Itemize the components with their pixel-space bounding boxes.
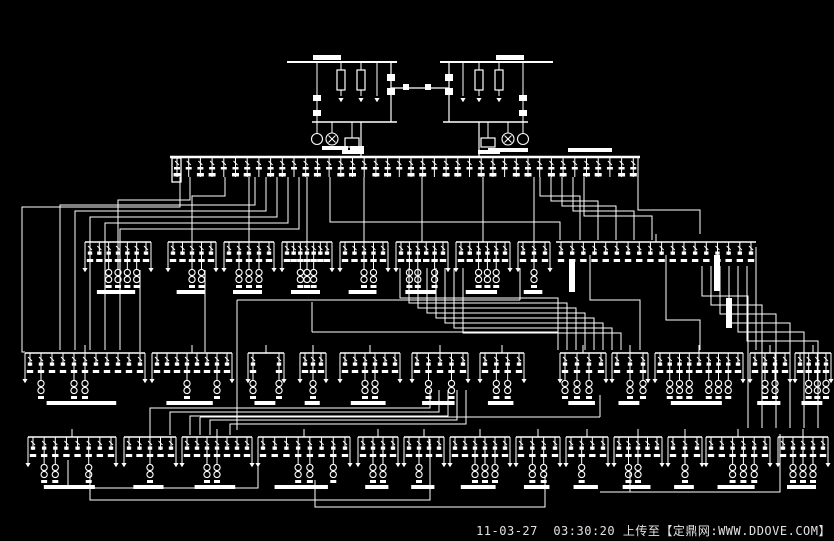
watermark-text: 11-03-27 03:30:20 上传至【定鼎网:WWW.DDOVE.COM】	[476, 524, 831, 538]
ct-dash	[245, 447, 249, 450]
feeder-label	[209, 173, 216, 177]
feeder-label	[314, 173, 321, 177]
meter-circle	[297, 269, 303, 275]
circuit-drop	[184, 353, 190, 399]
meter-circle	[52, 464, 58, 470]
meter-circle	[562, 380, 568, 386]
panel-label-bar	[97, 290, 135, 294]
circuit-label	[708, 454, 714, 457]
meter-circle	[86, 464, 92, 470]
ct-dash	[541, 447, 545, 450]
distribution-panel	[393, 234, 450, 294]
circuit-label	[342, 454, 348, 457]
arrow-icon	[229, 379, 234, 383]
circuit-drop	[574, 353, 580, 399]
feeder-label	[349, 173, 356, 177]
circuit-drop	[614, 353, 620, 373]
feeder-label	[454, 173, 461, 177]
circuit-label	[654, 454, 660, 457]
ct-dash	[687, 363, 691, 366]
circuit-label	[780, 454, 786, 457]
meter-label	[86, 480, 92, 483]
panel-label-bar	[291, 290, 320, 294]
routing-line	[60, 177, 255, 350]
meter-circle-2	[246, 276, 252, 282]
feeder-drop	[221, 157, 227, 177]
circuit-drop	[380, 437, 386, 483]
routing-line	[68, 439, 258, 488]
ct-dash	[438, 363, 442, 366]
meter-circle	[772, 380, 778, 386]
arrow-icon	[557, 463, 562, 467]
meter-circle-2	[330, 471, 336, 477]
meter-circle-2	[531, 276, 537, 282]
circuit-label	[542, 259, 548, 262]
meter-circle	[38, 380, 44, 386]
arrow-icon	[665, 463, 670, 467]
circuit-label	[164, 370, 170, 373]
ct-dash	[463, 447, 467, 450]
meter-circle-2	[529, 471, 535, 477]
ct-dash	[326, 167, 332, 170]
circuit-drop	[74, 437, 80, 457]
circuit-label	[518, 454, 524, 457]
circuit-label	[63, 454, 69, 457]
panel-label-bar	[422, 401, 454, 405]
meter-circle-2	[492, 471, 498, 477]
ct-dash	[587, 363, 591, 366]
meter-label	[716, 396, 722, 399]
ct-dash	[148, 447, 152, 450]
arrow-icon	[563, 463, 568, 467]
ct-dash	[186, 167, 192, 170]
circuit-drop	[60, 353, 66, 373]
incomer-transformer-left	[287, 55, 397, 157]
panel-label-bar	[674, 485, 694, 489]
meter-circle	[627, 380, 633, 386]
circuit-drop	[542, 242, 548, 262]
ct-dash	[455, 167, 461, 170]
circuit-drop	[636, 242, 642, 262]
circuit-drop	[86, 437, 92, 483]
meter-circle-2	[493, 276, 499, 282]
meter-label	[640, 396, 646, 399]
meter-circle-2	[562, 387, 568, 393]
feeder-drop	[454, 157, 461, 177]
feeder-label	[630, 173, 637, 177]
meter-label	[147, 480, 153, 483]
meter-circle-2	[725, 387, 731, 393]
panel-label-bar	[568, 401, 595, 405]
circuit-drop	[682, 437, 688, 483]
ct-dash	[806, 363, 810, 366]
ct-dash	[417, 447, 421, 450]
meter-circle	[667, 380, 673, 386]
circuit-drop	[696, 353, 702, 373]
circuit-drop	[737, 242, 743, 262]
circuit-drop	[540, 437, 546, 483]
tie-switch	[403, 84, 409, 90]
distribution-panel	[337, 234, 390, 294]
ct-dash	[371, 252, 375, 255]
panel-label-bar	[254, 401, 275, 405]
circuit-label	[208, 259, 214, 262]
meter-circle	[307, 464, 313, 470]
meter-circle	[640, 380, 646, 386]
panel-label-bar	[351, 401, 386, 405]
meter-label	[725, 396, 731, 399]
circuit-label	[657, 370, 663, 373]
ct-dash	[256, 167, 262, 170]
ct-dash	[671, 447, 675, 450]
circuit-drop	[729, 437, 735, 483]
ct-dash	[127, 363, 131, 366]
circuit-drop	[147, 437, 153, 483]
ct-dash	[467, 167, 473, 170]
circuit-drop	[614, 242, 620, 262]
arrow-icon	[355, 463, 360, 467]
meter-circle-2	[372, 387, 378, 393]
circuit-label	[820, 454, 826, 457]
circuit-drop	[475, 242, 481, 288]
circuit-label	[224, 454, 230, 457]
arrow-icon	[792, 379, 797, 383]
ct-box	[519, 95, 527, 101]
circuit-label	[234, 454, 240, 457]
ct-dash	[319, 363, 323, 366]
ct-dash	[468, 252, 472, 255]
circuit-drop	[706, 353, 712, 399]
meter-circle	[370, 464, 376, 470]
circuit-drop	[502, 242, 508, 262]
meter-circle	[276, 380, 282, 386]
circuit-drop	[436, 437, 442, 457]
circuit-drop	[748, 242, 754, 262]
ct-dash	[741, 447, 745, 450]
arrow-icon	[173, 463, 178, 467]
circuit-drop	[782, 353, 788, 373]
meter-circle-2	[432, 276, 438, 282]
feeder-drop	[314, 157, 321, 177]
meter-circle	[806, 380, 812, 386]
ct-dash	[174, 167, 180, 170]
meter-circle-2	[214, 387, 220, 393]
circuit-label	[136, 454, 142, 457]
meter-circle-2	[361, 276, 367, 282]
ct-dash	[521, 252, 525, 255]
circuit-drop	[318, 437, 324, 457]
meter-label	[627, 396, 633, 399]
circuit-drop	[520, 242, 526, 262]
arrow-icon	[338, 98, 343, 102]
meter-circle-2	[295, 471, 301, 477]
meter-circle-2	[586, 387, 592, 393]
circuit-label	[324, 259, 330, 262]
circuit-drop	[644, 437, 650, 457]
meter-circle-2	[236, 276, 242, 282]
circuit-drop	[751, 437, 757, 483]
ct-dash	[494, 252, 498, 255]
meter-label	[505, 396, 511, 399]
circuit-drop	[361, 242, 367, 288]
ct-dash	[109, 447, 113, 450]
feeder-drop	[361, 157, 367, 177]
ct-dash	[257, 252, 261, 255]
arrow-icon	[329, 268, 334, 272]
circuit-label	[600, 454, 606, 457]
circuit-drop	[715, 353, 721, 399]
ct-dash	[604, 252, 608, 255]
ct-dash	[424, 252, 428, 255]
circuit-drop	[198, 242, 204, 288]
feeder-label	[443, 173, 450, 177]
circuit-label	[647, 259, 653, 262]
ct-dash	[483, 447, 487, 450]
meter-label	[529, 480, 535, 483]
meter-circle	[432, 269, 438, 275]
arrow-icon	[507, 463, 512, 467]
ct-dash	[704, 252, 708, 255]
circuit-drop	[670, 437, 676, 457]
distribution-panel	[149, 345, 234, 405]
feeder-drop	[478, 157, 485, 177]
circuit-drop	[640, 353, 646, 399]
meter-circle	[310, 380, 316, 386]
circuit-label	[558, 259, 564, 262]
circuit-drop	[670, 242, 676, 262]
meter-circle	[531, 269, 537, 275]
circuit-label	[194, 454, 200, 457]
meter-circle	[361, 269, 367, 275]
meter-label	[82, 396, 88, 399]
ct-dash	[720, 447, 724, 450]
distribution-panel	[409, 345, 470, 405]
circuit-drop	[482, 353, 488, 373]
routing-line	[590, 255, 640, 350]
meter-circle-2	[686, 387, 692, 393]
circuit-drop	[814, 353, 820, 399]
arrow-icon	[611, 463, 616, 467]
circuit-drop	[431, 242, 437, 288]
meter-label	[361, 285, 367, 288]
meter-circle	[425, 380, 431, 386]
circuit-label	[719, 454, 725, 457]
feeder-label	[618, 173, 625, 177]
circuit-label	[30, 454, 36, 457]
circuit-label	[360, 454, 366, 457]
meter-circle	[380, 464, 386, 470]
ct-dash	[331, 447, 335, 450]
ct-dash	[350, 167, 356, 170]
ct-dash	[273, 447, 277, 450]
circuit-drop	[625, 437, 631, 483]
ct-dash	[563, 363, 567, 366]
circuit-drop	[735, 353, 741, 373]
meter-circle-2	[71, 387, 77, 393]
panel-label-bar	[44, 485, 95, 489]
meter-circle	[635, 464, 641, 470]
distribution-panel	[609, 345, 650, 405]
meter-label	[246, 285, 252, 288]
circuit-drop	[97, 437, 103, 457]
meter-circle-2	[82, 387, 88, 393]
feeder-drop	[267, 157, 274, 177]
meter-circle-2	[482, 471, 488, 477]
distribution-panel	[297, 345, 328, 405]
bus-label-bar	[322, 146, 348, 150]
ct-dash	[584, 167, 590, 170]
circuit-label	[423, 259, 429, 262]
ct-dash	[94, 363, 98, 366]
feeder-drop	[384, 157, 391, 177]
ct-dash	[98, 447, 102, 450]
circuit-label	[440, 259, 446, 262]
meter-circle-2	[635, 471, 641, 477]
circuit-drop	[562, 353, 568, 399]
arrow-icon	[513, 463, 518, 467]
feeder-label	[232, 173, 239, 177]
circuit-label	[174, 370, 180, 373]
circuit-drop	[302, 353, 308, 373]
meter-circle	[304, 269, 310, 275]
meter-label	[134, 285, 140, 288]
bus-label-bar	[568, 148, 612, 152]
meter-label	[677, 396, 683, 399]
meter-label	[71, 396, 77, 399]
panel-tier	[22, 345, 833, 405]
circuit-label	[351, 259, 357, 262]
ct-dash	[197, 167, 203, 170]
routing-line	[584, 177, 652, 240]
feeder-label	[513, 173, 520, 177]
meter-label	[304, 285, 310, 288]
arrow-icon	[477, 379, 482, 383]
feeder-label	[384, 173, 391, 177]
ct-dash	[225, 447, 229, 450]
distribution-panel	[775, 429, 830, 489]
distribution-panel	[179, 429, 254, 489]
ct-dash	[683, 447, 687, 450]
ct-dash	[658, 363, 662, 366]
meter-label	[740, 480, 746, 483]
meter-label	[790, 480, 796, 483]
ct-dash	[490, 167, 496, 170]
device-box	[481, 138, 495, 147]
ct-dash	[185, 447, 189, 450]
ct-dash	[325, 252, 329, 255]
meter-circle-2	[250, 387, 256, 393]
feeder-drop	[326, 157, 332, 177]
circuit-label	[703, 259, 709, 262]
distribution-panel	[556, 234, 756, 262]
circuit-drop	[49, 353, 55, 373]
circuit-drop	[204, 437, 210, 483]
ct-dash	[371, 447, 375, 450]
ct-dash	[155, 363, 159, 366]
feeder-label	[197, 173, 204, 177]
circuit-drop	[686, 353, 692, 399]
circuit-label	[569, 259, 575, 262]
distribution-panel	[792, 345, 833, 405]
ct-box	[313, 110, 321, 116]
circuit-label	[603, 259, 609, 262]
distribution-panel	[477, 345, 526, 405]
circuit-drop	[168, 437, 174, 457]
meter-circle	[312, 134, 323, 145]
breaker-box	[445, 88, 453, 95]
ct-box	[313, 95, 321, 101]
meter-circle	[124, 269, 130, 275]
circuit-label	[636, 259, 642, 262]
ct-dash	[415, 363, 419, 366]
circuit-drop	[681, 242, 687, 262]
ct-dash	[134, 252, 138, 255]
ct-dash	[39, 363, 43, 366]
distribution-panel	[279, 234, 334, 294]
meter-circle	[518, 134, 529, 145]
feeder-drop	[197, 157, 204, 177]
meter-circle	[505, 380, 511, 386]
arrow-icon	[609, 379, 614, 383]
ct-dash	[267, 252, 271, 255]
ct-dash	[641, 363, 645, 366]
meter-circle-2	[640, 387, 646, 393]
feeder-drop	[583, 157, 590, 177]
circuit-drop	[772, 353, 778, 399]
meter-circle	[814, 380, 820, 386]
ct-dash	[671, 252, 675, 255]
meter-circle	[482, 464, 488, 470]
ct-dash	[247, 252, 251, 255]
circuit-drop	[351, 242, 357, 262]
meter-label	[806, 396, 812, 399]
feeder-drop	[337, 157, 344, 177]
ct-dash	[636, 447, 640, 450]
meter-label	[370, 480, 376, 483]
feeder-label	[560, 173, 567, 177]
arrow-icon	[767, 463, 772, 467]
fuse-symbol	[495, 70, 503, 90]
routing-line	[463, 268, 621, 350]
meter-circle-2	[505, 387, 511, 393]
circuit-drop	[462, 437, 468, 457]
feeder-label	[244, 173, 251, 177]
meter-circle	[823, 380, 829, 386]
circuit-drop	[290, 242, 296, 262]
meter-circle-2	[625, 471, 631, 477]
circuit-drop	[310, 353, 316, 399]
feeder-drop	[209, 157, 216, 177]
ct-dash	[595, 167, 601, 170]
circuit-drop	[627, 353, 633, 399]
circuit-label	[244, 454, 250, 457]
arrow-icon	[507, 268, 512, 272]
circuit-drop	[458, 242, 464, 262]
circuit-drop	[87, 242, 93, 262]
circuit-label	[283, 454, 289, 457]
circuit-label	[516, 370, 522, 373]
circuit-label	[318, 454, 324, 457]
ct-dash	[572, 167, 578, 170]
arrow-icon	[337, 268, 342, 272]
circuit-label	[104, 370, 110, 373]
ct-dash	[144, 252, 148, 255]
meter-label	[371, 285, 377, 288]
routing-line	[409, 268, 567, 350]
circuit-label	[266, 259, 272, 262]
feeder-drop	[232, 157, 239, 177]
ct-dash	[383, 363, 387, 366]
